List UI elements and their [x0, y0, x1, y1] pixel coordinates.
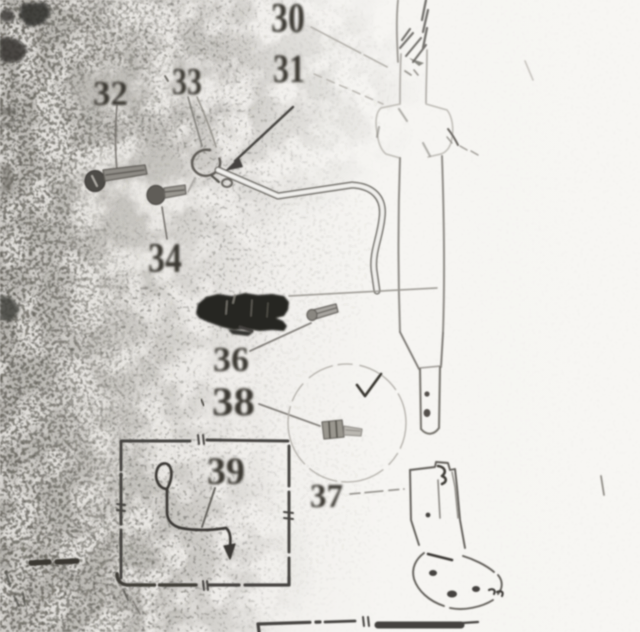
- svg-text:31: 31: [273, 46, 305, 91]
- svg-text:37: 37: [310, 478, 343, 515]
- svg-text:33: 33: [172, 61, 202, 103]
- svg-text:39: 39: [207, 450, 245, 493]
- svg-text:34: 34: [148, 236, 182, 282]
- svg-text:38: 38: [212, 379, 255, 424]
- svg-text:32: 32: [93, 74, 128, 113]
- svg-text:30: 30: [271, 0, 305, 42]
- svg-text:36: 36: [213, 340, 249, 379]
